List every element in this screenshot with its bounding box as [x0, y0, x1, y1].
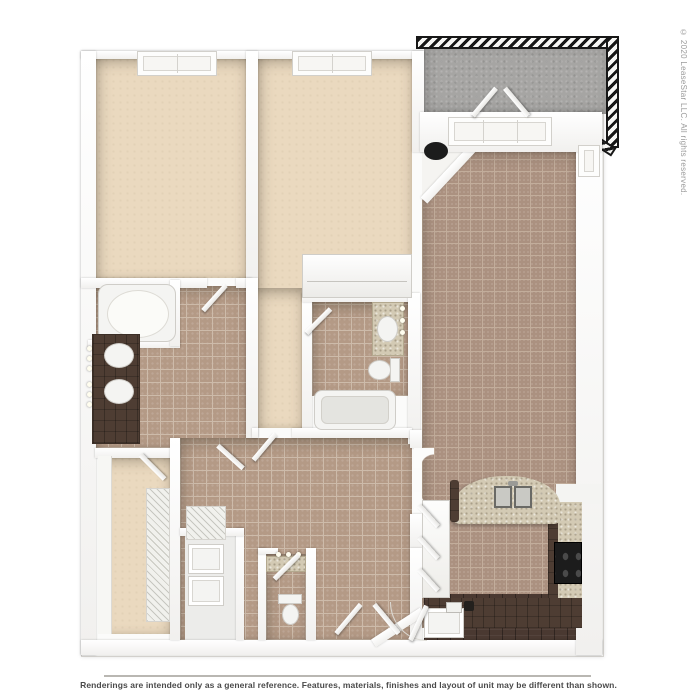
closet-rod	[307, 281, 407, 282]
bath-2-bathtub	[314, 390, 396, 430]
wall-powder-right	[306, 548, 316, 640]
bath-2-sink	[377, 316, 398, 342]
wall-bath2-right	[408, 293, 420, 444]
vanity-sink-2	[104, 379, 134, 404]
floor-plan-rendering: Renderings are intended only as a genera…	[0, 0, 697, 697]
vanity-light	[87, 402, 92, 407]
vanity-light	[276, 552, 281, 557]
island-base-side	[450, 480, 459, 522]
vanity-light	[400, 306, 405, 311]
wall-hall-living-a	[410, 430, 422, 448]
living-room-side-window	[578, 145, 600, 177]
footer-divider	[104, 675, 591, 677]
bath-2-toilet-bowl	[368, 360, 391, 380]
wall-laundry-right	[236, 528, 244, 640]
wall-bath2-left	[302, 293, 312, 436]
powder-toilet-bowl	[282, 604, 299, 625]
vanity-sink-1	[104, 343, 134, 368]
vanity-light	[87, 392, 92, 397]
window-mullion	[177, 54, 178, 73]
wall-bottom	[81, 640, 602, 655]
disclaimer-text: Renderings are intended only as a genera…	[0, 680, 697, 690]
washer	[188, 544, 224, 574]
laundry-wire-shelf	[186, 506, 226, 540]
island-sink-right	[514, 486, 532, 508]
wall-closet-right	[170, 438, 180, 640]
bedroom-2-closet-shelf	[302, 254, 412, 298]
bedroom-1-window	[137, 51, 217, 76]
dryer	[188, 576, 224, 606]
wall-bed1-bed2	[246, 51, 258, 288]
vanity-light	[87, 346, 92, 351]
island-faucet	[508, 481, 518, 486]
bedroom-2-window	[292, 51, 372, 76]
closet-shelf-left	[98, 456, 112, 634]
copyright-text: © 2020 LeaseStar LLC. All rights reserve…	[679, 28, 688, 195]
closet-wire-shelf	[146, 488, 170, 622]
arch-corbel-top	[414, 448, 434, 468]
wall-masterbath-right	[246, 278, 258, 438]
wall-powder-top	[258, 548, 278, 554]
window-mullion	[332, 54, 333, 73]
vanity-light	[87, 382, 92, 387]
countertop-item-dark	[464, 601, 474, 611]
balcony-french-door-unit	[448, 117, 552, 146]
vanity-light	[286, 552, 291, 557]
wall-powder-left	[258, 548, 266, 640]
balcony-railing-top	[416, 36, 619, 49]
tub-basin	[107, 290, 169, 338]
balcony-railing-right	[606, 36, 619, 148]
range	[554, 542, 582, 584]
bedroom-2-alcove-floor	[258, 288, 302, 428]
vanity-light	[400, 318, 405, 323]
vanity-light	[87, 356, 92, 361]
countertop-item-white	[446, 602, 462, 613]
wall-hall-top-a	[252, 428, 258, 438]
round-table	[424, 142, 448, 160]
window-mullion	[483, 120, 484, 143]
vanity-light	[87, 366, 92, 371]
window-mullion	[517, 120, 518, 143]
bath-2-toilet-tank	[390, 358, 400, 382]
window-glass	[584, 150, 594, 172]
island-sink-left	[494, 486, 512, 508]
bedroom-1-floor	[96, 57, 246, 278]
powder-toilet-tank	[278, 594, 302, 604]
kitchen-counter-return	[556, 484, 602, 504]
vanity-light	[400, 330, 405, 335]
window-glass	[454, 122, 546, 141]
tub-basin	[321, 396, 389, 424]
